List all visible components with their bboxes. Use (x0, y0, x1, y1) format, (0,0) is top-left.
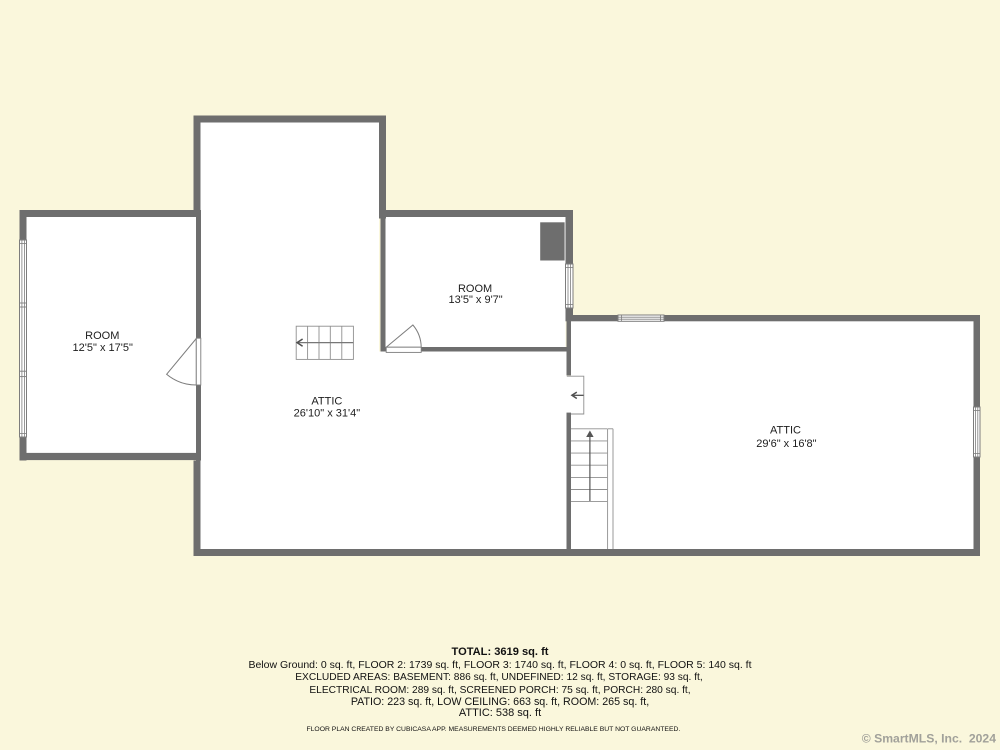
svg-text:ATTIC: ATTIC (311, 395, 342, 407)
svg-text:ELECTRICAL ROOM: 289 sq. ft, S: ELECTRICAL ROOM: 289 sq. ft, SCREENED PO… (309, 685, 690, 696)
svg-text:ATTIC: ATTIC (770, 425, 801, 437)
svg-text:TOTAL: 3619 sq. ft: TOTAL: 3619 sq. ft (452, 646, 549, 658)
svg-text:EXCLUDED AREAS: BASEMENT: 886: EXCLUDED AREAS: BASEMENT: 886 sq. ft, UN… (295, 672, 702, 683)
svg-text:ATTIC: 538 sq. ft: ATTIC: 538 sq. ft (459, 707, 541, 719)
svg-text:© SmartMLS, Inc. 2024: © SmartMLS, Inc. 2024 (862, 731, 997, 745)
svg-text:26'10" x 31'4": 26'10" x 31'4" (294, 407, 361, 419)
svg-text:ROOM: ROOM (85, 330, 119, 342)
svg-text:12'5" x 17'5": 12'5" x 17'5" (73, 342, 133, 354)
svg-text:Below Ground: 0 sq. ft, FLOOR: Below Ground: 0 sq. ft, FLOOR 2: 1739 sq… (248, 659, 751, 671)
svg-text:29'6" x 16'8": 29'6" x 16'8" (756, 438, 816, 450)
svg-text:13'5" x 9'7": 13'5" x 9'7" (448, 294, 502, 306)
svg-text:FLOOR PLAN CREATED BY CUBICASA: FLOOR PLAN CREATED BY CUBICASA APP. MEAS… (306, 726, 680, 733)
